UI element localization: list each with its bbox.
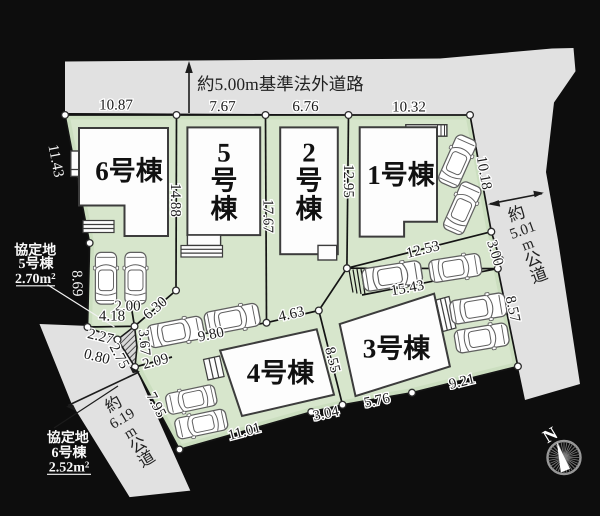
svg-text:協定地: 協定地 bbox=[14, 242, 56, 259]
svg-text:10.87: 10.87 bbox=[99, 98, 133, 114]
svg-text:2.52m2: 2.52m2 bbox=[49, 459, 90, 475]
svg-text:6号棟: 6号棟 bbox=[52, 444, 88, 461]
svg-text:6号棟: 6号棟 bbox=[95, 156, 163, 186]
svg-text:8.69: 8.69 bbox=[68, 270, 85, 297]
svg-text:棟: 棟 bbox=[296, 194, 324, 224]
svg-text:号: 号 bbox=[211, 166, 238, 196]
svg-text:10.32: 10.32 bbox=[392, 100, 426, 116]
svg-text:2.70m2: 2.70m2 bbox=[15, 271, 56, 287]
svg-text:4.18: 4.18 bbox=[99, 309, 125, 325]
svg-text:14.88: 14.88 bbox=[167, 183, 183, 217]
svg-text:12.95: 12.95 bbox=[340, 164, 356, 198]
svg-text:約5.00m基準法外道路: 約5.00m基準法外道路 bbox=[197, 74, 364, 94]
svg-text:6.76: 6.76 bbox=[292, 99, 319, 115]
svg-text:17.67: 17.67 bbox=[260, 199, 276, 233]
svg-text:3.67: 3.67 bbox=[135, 329, 153, 357]
svg-text:1号棟: 1号棟 bbox=[367, 160, 435, 190]
svg-text:2: 2 bbox=[302, 138, 316, 168]
svg-text:7.67: 7.67 bbox=[209, 99, 236, 115]
svg-text:5号棟: 5号棟 bbox=[19, 255, 55, 272]
svg-text:4号棟: 4号棟 bbox=[247, 358, 315, 388]
svg-text:棟: 棟 bbox=[211, 194, 239, 224]
svg-text:3号棟: 3号棟 bbox=[363, 334, 431, 364]
svg-text:号: 号 bbox=[296, 166, 323, 196]
svg-text:協定地: 協定地 bbox=[47, 429, 89, 446]
svg-text:5: 5 bbox=[217, 138, 231, 168]
